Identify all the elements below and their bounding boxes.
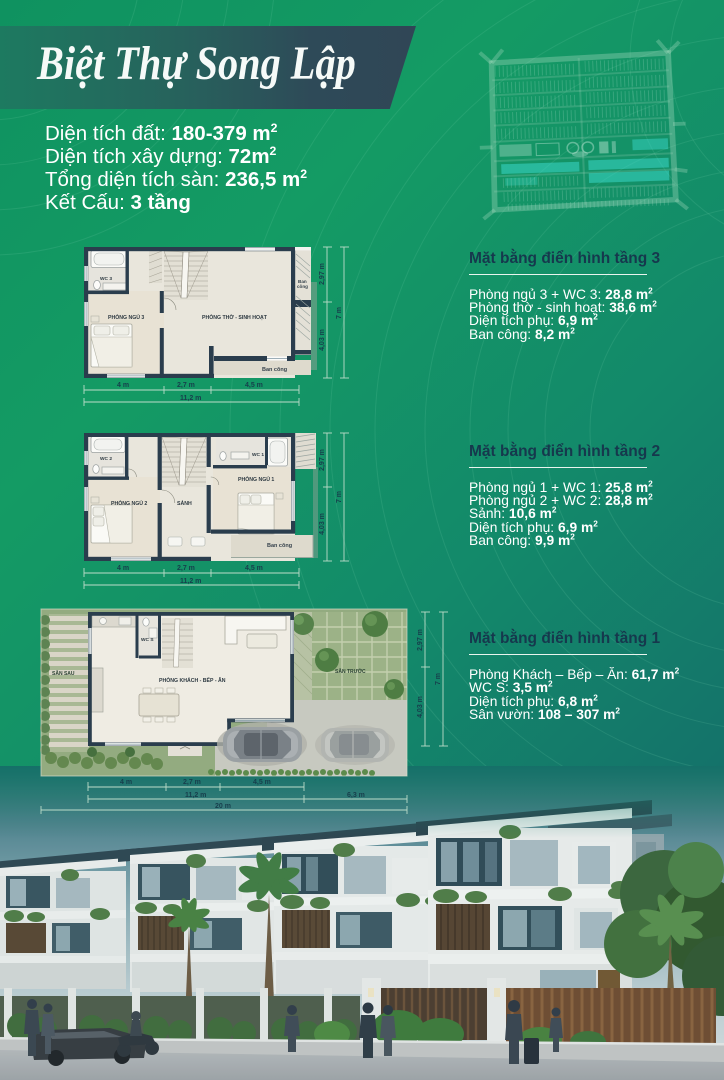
svg-text:4 m: 4 m <box>117 565 129 572</box>
svg-text:PHÒNG NGỦ 2: PHÒNG NGỦ 2 <box>111 499 147 507</box>
svg-text:WC 3: WC 3 <box>100 276 112 282</box>
svg-text:SẢNH: SẢNH <box>177 500 192 507</box>
svg-text:2,7 m: 2,7 m <box>177 565 195 572</box>
svg-text:6,3 m: 6,3 m <box>347 792 365 799</box>
svg-text:11,2 m: 11,2 m <box>185 792 206 799</box>
svg-text:Ban công: Ban công <box>262 367 287 373</box>
svg-text:2,7 m: 2,7 m <box>183 779 201 786</box>
svg-text:PHÒNG NGỦ 1: PHÒNG NGỦ 1 <box>238 475 274 483</box>
svg-text:2,97 m: 2,97 m <box>319 263 326 285</box>
svg-text:SÂN SAU: SÂN SAU <box>52 670 75 677</box>
svg-text:PHÒNG NGỦ 3: PHÒNG NGỦ 3 <box>108 313 144 321</box>
svg-text:2,97 m: 2,97 m <box>417 629 424 651</box>
svg-text:7 m: 7 m <box>435 673 442 685</box>
svg-text:4,03 m: 4,03 m <box>319 513 326 535</box>
svg-text:4,5 m: 4,5 m <box>245 565 263 572</box>
svg-text:PHÒNG THỜ - SINH HOẠT: PHÒNG THỜ - SINH HOẠT <box>202 313 268 321</box>
svg-text:7 m: 7 m <box>336 307 343 319</box>
svg-text:11,2 m: 11,2 m <box>180 395 201 402</box>
svg-text:4,03 m: 4,03 m <box>319 329 326 351</box>
svg-text:4,5 m: 4,5 m <box>253 779 271 786</box>
svg-text:WC 2: WC 2 <box>100 456 112 462</box>
svg-text:Ban công: Ban công <box>267 543 292 549</box>
svg-text:PHÒNG KHÁCH - BẾP - ĂN: PHÒNG KHÁCH - BẾP - ĂN <box>159 676 226 684</box>
svg-text:2,97 m: 2,97 m <box>319 449 326 471</box>
svg-text:11,2 m: 11,2 m <box>180 578 201 585</box>
svg-text:SÂN TRƯỚC: SÂN TRƯỚC <box>335 667 366 675</box>
svg-text:4,03 m: 4,03 m <box>417 696 424 718</box>
svg-text:4 m: 4 m <box>117 382 129 389</box>
svg-text:WC 1: WC 1 <box>252 452 264 458</box>
svg-text:4,5 m: 4,5 m <box>245 382 263 389</box>
svg-text:20 m: 20 m <box>215 803 231 810</box>
svg-text:7 m: 7 m <box>336 491 343 503</box>
svg-text:4 m: 4 m <box>120 779 132 786</box>
svg-text:2,7 m: 2,7 m <box>177 382 195 389</box>
svg-text:công: công <box>297 284 308 289</box>
svg-text:WC S: WC S <box>141 637 154 643</box>
